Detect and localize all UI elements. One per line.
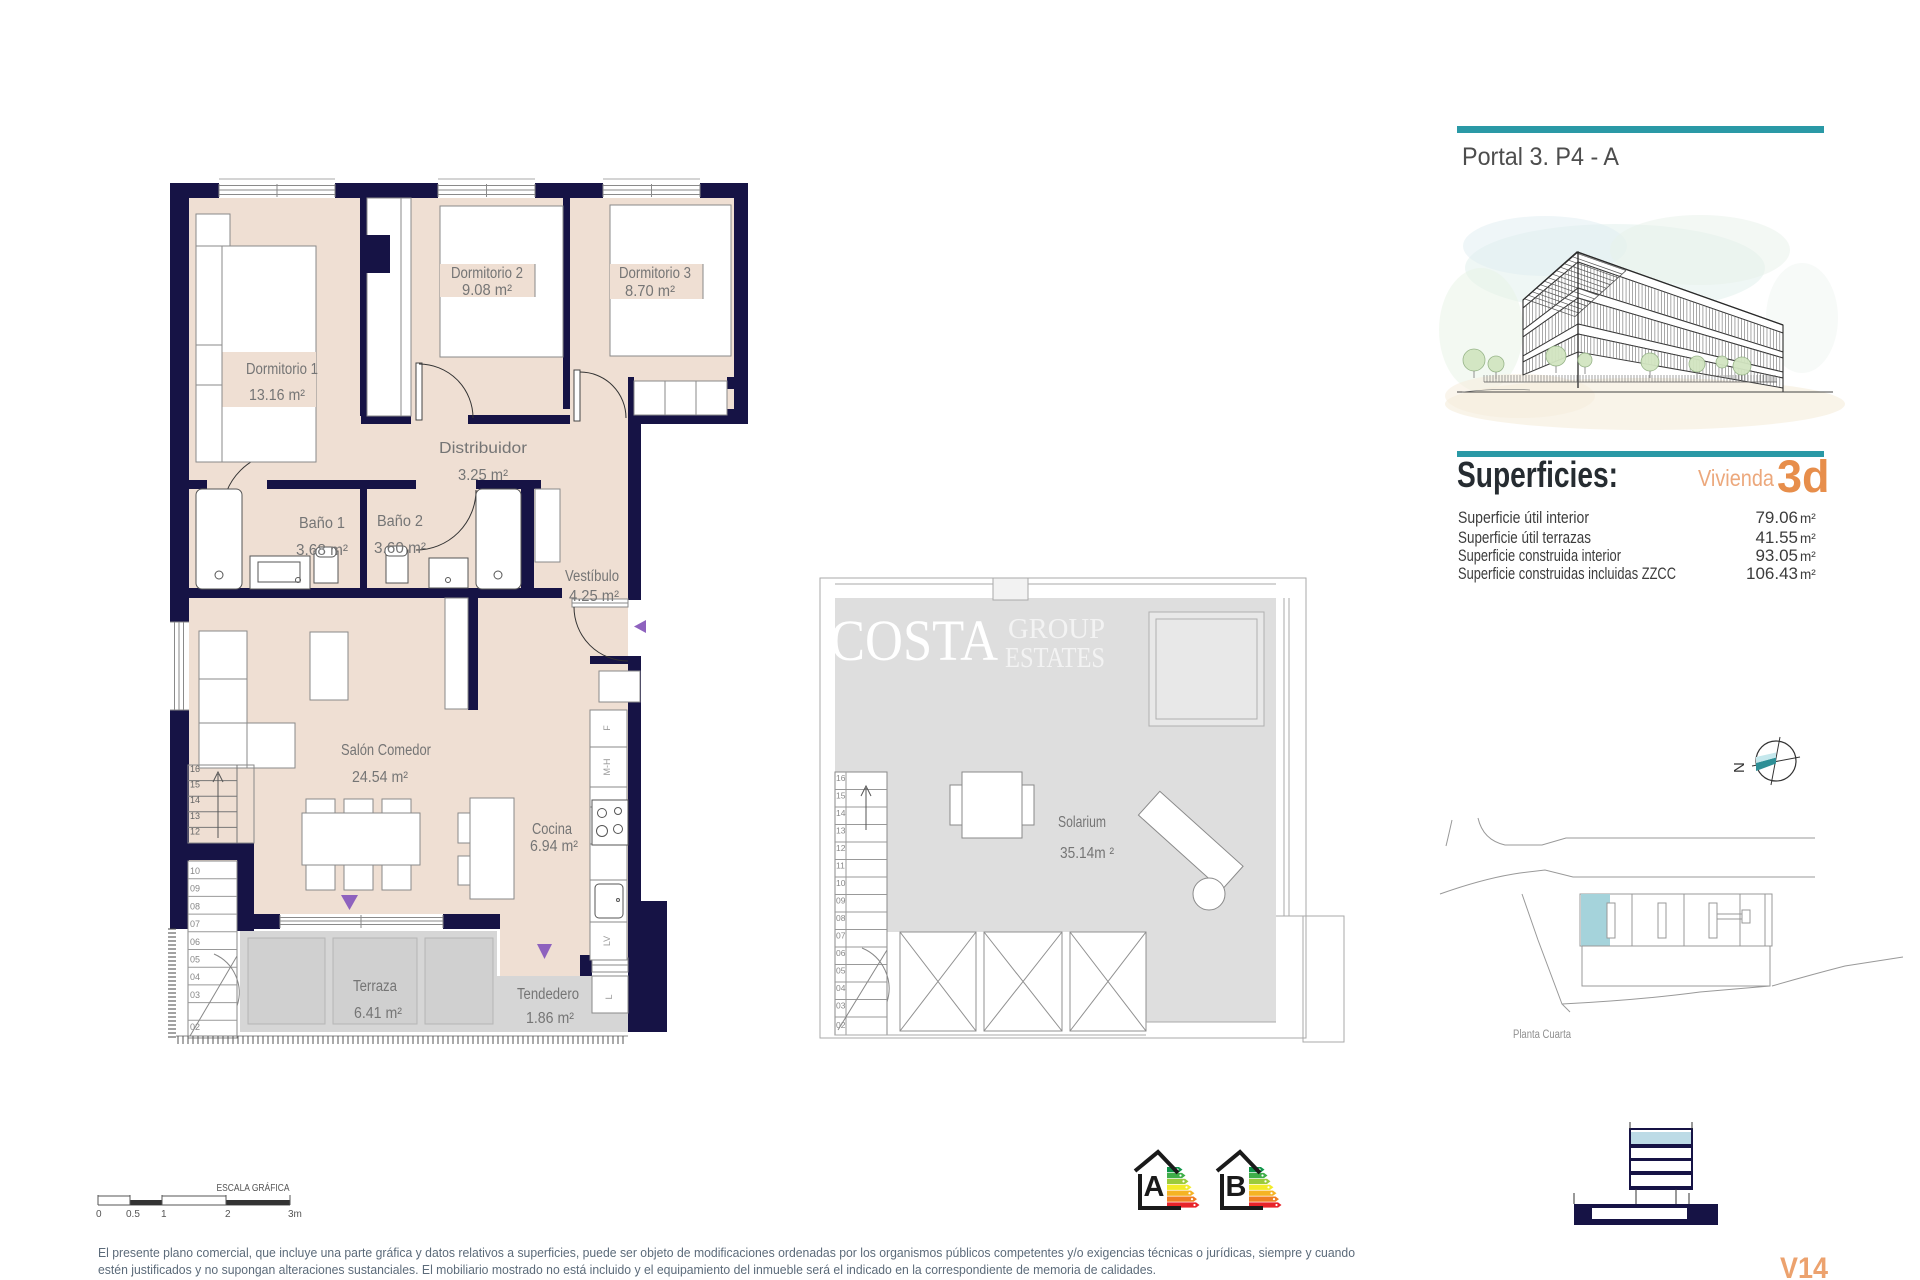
svg-text:Dormitorio 1: Dormitorio 1 [246,361,318,378]
svg-text:106.43: 106.43 [1746,564,1798,583]
svg-text:A: A [1144,1171,1165,1203]
svg-text:16: 16 [190,764,200,774]
svg-text:GROUP: GROUP [1008,613,1105,645]
svg-text:04: 04 [190,972,200,982]
svg-text:15: 15 [190,780,200,790]
svg-text:Superficie útil interior: Superficie útil interior [1458,508,1589,527]
svg-text:13.16 m²: 13.16 m² [249,387,305,404]
svg-text:m²: m² [1800,531,1816,546]
svg-text:05: 05 [836,966,846,976]
svg-text:4.25 m²: 4.25 m² [569,588,619,605]
svg-text:m²: m² [1800,567,1816,582]
svg-text:Planta Cuarta: Planta Cuarta [1513,1029,1571,1041]
svg-text:08: 08 [190,901,200,911]
svg-text:24.54 m²: 24.54 m² [352,769,408,786]
svg-text:Superficie construida interior: Superficie construida interior [1458,546,1621,565]
svg-text:14: 14 [190,795,200,805]
svg-text:8.70 m²: 8.70 m² [625,283,675,300]
svg-text:12: 12 [836,843,846,853]
svg-text:3.60 m²: 3.60 m² [374,540,426,557]
svg-text:B: B [1226,1171,1247,1203]
svg-text:14: 14 [836,808,846,818]
svg-text:L: L [604,994,614,999]
svg-text:Baño 2: Baño 2 [377,513,423,530]
svg-text:m²: m² [1800,549,1816,564]
svg-text:V14: V14 [1780,1252,1828,1280]
svg-text:11: 11 [836,861,845,871]
svg-text:06: 06 [836,948,846,958]
svg-text:06: 06 [190,937,200,947]
svg-text:07: 07 [836,931,846,941]
svg-text:79.06: 79.06 [1755,508,1798,527]
svg-text:1: 1 [161,1209,167,1220]
svg-text:Dormitorio 3: Dormitorio 3 [619,265,691,282]
svg-text:LV: LV [602,936,612,946]
svg-text:07: 07 [190,919,200,929]
svg-text:03: 03 [190,990,200,1000]
svg-text:10: 10 [190,866,200,876]
svg-text:Terraza: Terraza [353,978,397,995]
svg-text:13: 13 [836,826,846,836]
svg-text:Distribuidor: Distribuidor [439,440,527,457]
svg-text:ESCALA GRÁFICA: ESCALA GRÁFICA [217,1181,290,1194]
svg-text:10: 10 [836,878,846,888]
svg-text:COSTA: COSTA [830,608,998,673]
svg-text:Superficies:: Superficies: [1457,454,1618,495]
svg-text:35.14m ²: 35.14m ² [1060,845,1114,862]
svg-text:ESTATES: ESTATES [1005,642,1105,674]
svg-text:2: 2 [225,1209,231,1220]
svg-text:Portal 3. P4 - A: Portal 3. P4 - A [1462,143,1619,171]
svg-text:Superficie construidas incluid: Superficie construidas incluidas ZZCC [1458,564,1676,583]
svg-text:Vivienda: Vivienda [1698,465,1774,491]
svg-text:Solarium: Solarium [1058,814,1106,831]
svg-text:3m: 3m [288,1209,302,1220]
svg-text:08: 08 [836,913,846,923]
svg-text:m²: m² [1800,511,1816,526]
svg-text:3.68 m²: 3.68 m² [296,542,348,559]
svg-text:1.86 m²: 1.86 m² [526,1010,574,1027]
svg-text:15: 15 [836,791,846,801]
svg-text:M-H: M-H [602,759,612,776]
svg-text:03: 03 [836,1001,846,1011]
svg-text:09: 09 [190,884,200,894]
svg-text:Salón Comedor: Salón Comedor [341,742,431,759]
svg-text:F: F [602,725,612,731]
svg-text:04: 04 [836,983,846,993]
svg-text:12: 12 [190,826,200,836]
svg-text:0: 0 [96,1209,102,1220]
svg-text:El presente plano comercial, q: El presente plano comercial, que incluye… [98,1245,1355,1260]
svg-text:estén justificados y no supong: estén justificados y no supongan alterac… [98,1262,1156,1277]
svg-text:0.5: 0.5 [126,1209,140,1220]
svg-text:16: 16 [836,773,846,783]
svg-text:09: 09 [836,896,846,906]
svg-text:3.25 m²: 3.25 m² [458,467,508,484]
svg-text:41.55: 41.55 [1755,528,1798,547]
svg-text:93.05: 93.05 [1755,546,1798,565]
svg-text:Vestíbulo: Vestíbulo [565,568,619,585]
svg-text:Baño 1: Baño 1 [299,515,345,532]
svg-text:13: 13 [190,811,200,821]
svg-text:9.08 m²: 9.08 m² [462,282,512,299]
svg-text:05: 05 [190,955,200,965]
svg-text:6.41 m²: 6.41 m² [354,1005,402,1022]
svg-text:Dormitorio 2: Dormitorio 2 [451,265,523,282]
svg-text:N: N [1731,762,1748,773]
svg-text:6.94 m²: 6.94 m² [530,838,578,855]
svg-text:3d: 3d [1777,451,1830,502]
svg-text:Cocina: Cocina [532,821,572,838]
svg-text:Superficie útil terrazas: Superficie útil terrazas [1458,528,1591,547]
svg-text:Tendedero: Tendedero [517,986,579,1003]
